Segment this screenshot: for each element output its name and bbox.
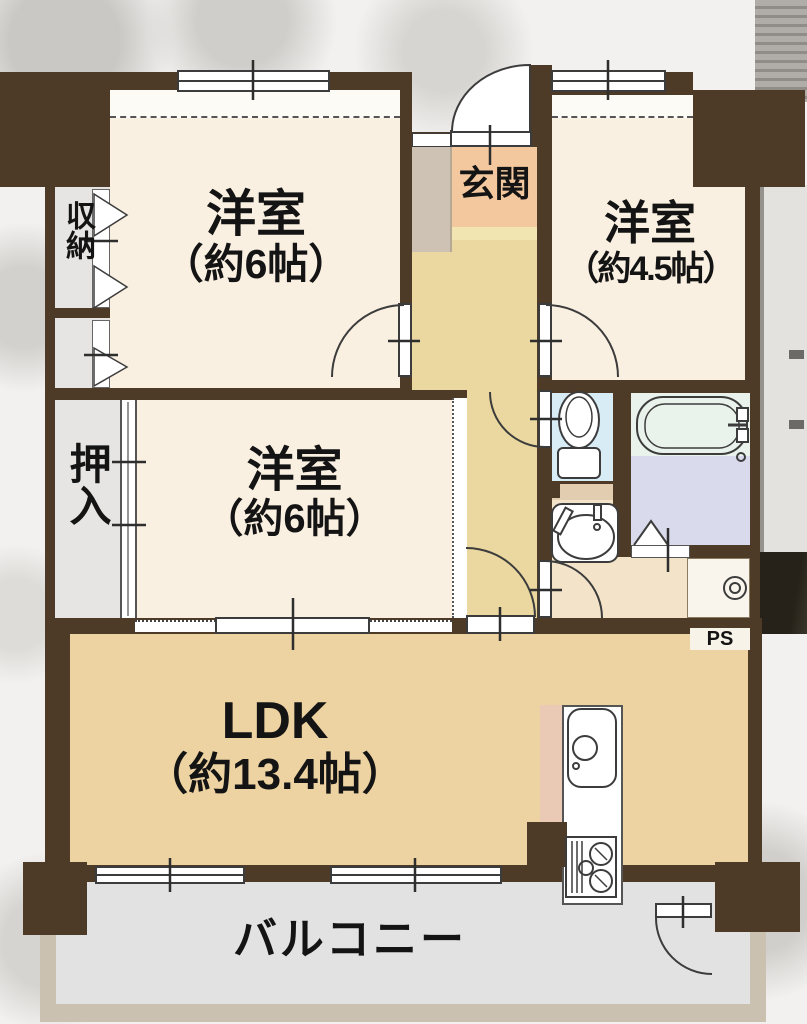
ldk-size: （約13.4帖） — [144, 750, 406, 799]
balcony-label: バルコニー — [70, 910, 630, 970]
floorplan-image: 洋室 （約6帖） 洋室 （約4.5帖） 洋室 （約6帖） 玄関 LDK （約13… — [0, 0, 807, 1024]
ps-name: PS — [707, 628, 734, 650]
kitchen-sink-icon — [568, 709, 616, 787]
bedroom1-name: 洋室 — [206, 186, 306, 242]
bedroom2-size: （約4.5帖） — [565, 250, 734, 288]
washing-machine-pan-icon — [724, 577, 746, 599]
stove-icon — [566, 837, 616, 897]
storage-label: 収納 — [62, 200, 92, 260]
bedroom1-size: （約6帖） — [163, 242, 350, 288]
balcony-name: バルコニー — [233, 915, 467, 964]
bath-folding-door-icon — [634, 521, 668, 545]
bedroom3-name: 洋室 — [246, 444, 342, 498]
ldk-hall-door-arc — [466, 548, 535, 617]
washbasin-icon — [552, 504, 618, 562]
bedroom3-size: （約6帖） — [203, 497, 385, 542]
bathtub-icon — [637, 397, 748, 461]
ldk-name: LDK — [222, 692, 329, 750]
ps-label: PS — [690, 628, 750, 650]
ldk-label: LDK （約13.4帖） — [75, 678, 475, 814]
genkan-name: 玄関 — [458, 164, 530, 204]
bedroom2-name: 洋室 — [604, 198, 696, 250]
bedroom1-label: 洋室 （約6帖） — [110, 168, 402, 306]
toilet-icon — [558, 392, 600, 478]
bedroom2-label: 洋室 （約4.5帖） — [540, 182, 760, 304]
storage-name: 収納 — [61, 200, 94, 260]
entrance-door-arc — [452, 65, 530, 132]
oshiire-name: 押入 — [64, 442, 111, 526]
genkan-label: 玄関 — [452, 155, 537, 213]
bedroom3-label: 洋室 （約6帖） — [137, 428, 452, 558]
oshiire-label: 押入 — [66, 442, 108, 526]
